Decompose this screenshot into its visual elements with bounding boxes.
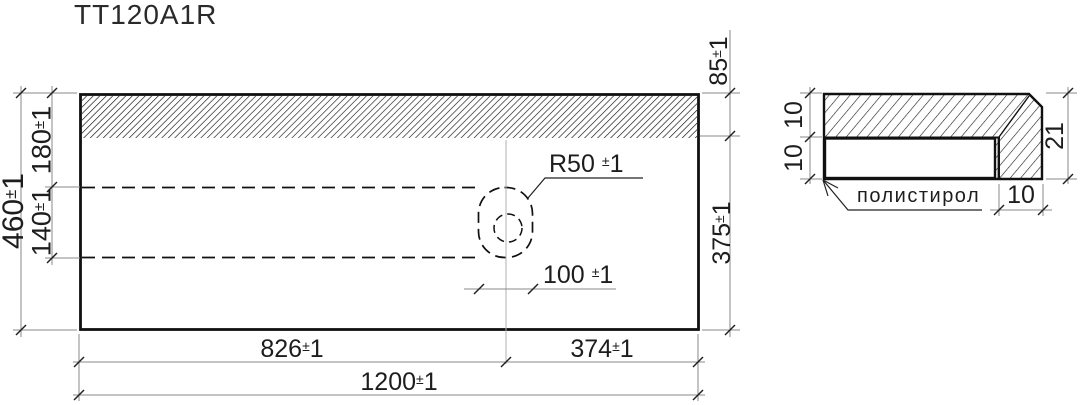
dim-height-total: 460±1 bbox=[0, 151, 26, 271]
polystyrene-core bbox=[825, 139, 995, 179]
dim-backsplash: 85±1 bbox=[701, 1, 731, 121]
dim-width-right: 374±1 bbox=[570, 337, 633, 362]
drawing-title: TT120A1R bbox=[74, 1, 217, 29]
plan-view bbox=[81, 95, 699, 365]
dim-edge-height: 21 bbox=[1040, 106, 1070, 166]
dim-bottom-layer-thickness: 10 bbox=[779, 128, 809, 188]
dim-height-middle: 140±1 bbox=[25, 162, 55, 282]
dim-edge-width: 10 bbox=[1007, 183, 1035, 208]
dim-hole-offset: 100±1 bbox=[543, 263, 613, 288]
dim-width-left: 826±1 bbox=[260, 337, 323, 362]
dim-width-total: 1200±1 bbox=[360, 370, 437, 395]
technical-drawing-canvas: TT120A1R 460±1 180±1 140±1 85±1 375±1 R5… bbox=[0, 0, 1084, 405]
dim-radius: R50±1 bbox=[549, 152, 623, 177]
section-view bbox=[824, 94, 1042, 179]
material-label: полистирол bbox=[857, 186, 980, 206]
backsplash-hatch-band bbox=[82, 96, 697, 138]
dim-depth: 375±1 bbox=[704, 173, 734, 293]
